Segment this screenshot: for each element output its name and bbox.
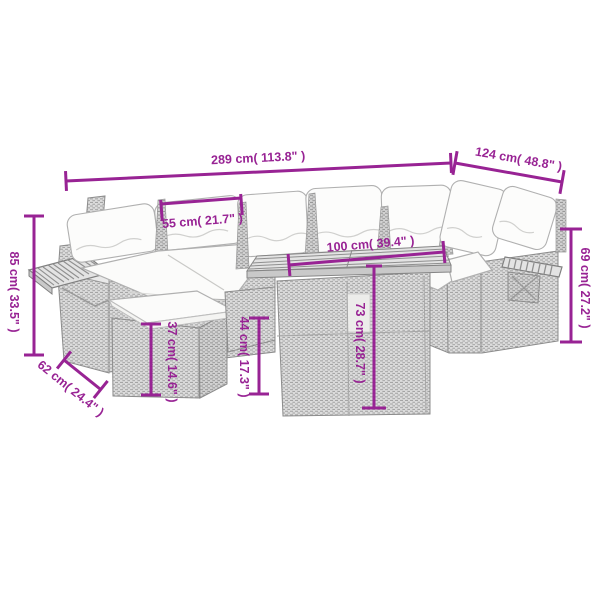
- svg-text:69 cm( 27.2" ): 69 cm( 27.2" ): [578, 248, 592, 329]
- svg-text:37 cm( 14.6" ): 37 cm( 14.6" ): [165, 322, 179, 403]
- svg-text:73 cm( 28.7" ): 73 cm( 28.7" ): [353, 303, 367, 384]
- svg-text:44 cm( 17.3" ): 44 cm( 17.3" ): [237, 317, 251, 398]
- svg-text:85 cm( 33.5" ): 85 cm( 33.5" ): [7, 252, 21, 333]
